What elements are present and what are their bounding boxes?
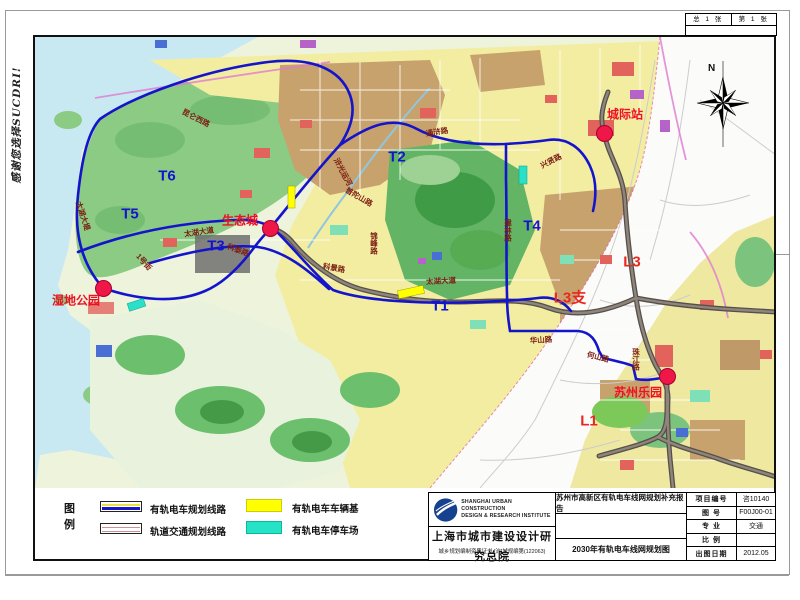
drawing-titles: 苏州市高新区有轨电车线网规划补充报告 2030年有轨电车线网规划图: [556, 493, 687, 560]
institute-logo: [433, 497, 458, 523]
field-label: 专 业: [687, 520, 737, 533]
field-value: [737, 534, 775, 547]
legend-title: 图例: [64, 500, 75, 532]
legend-label-depot: 有轨电车车辆基: [292, 501, 359, 515]
institute-name-cn: 上海市城市建设设计研究总院: [429, 526, 555, 547]
field-label: 项目编号: [687, 493, 737, 506]
field-label: 图 号: [687, 507, 737, 520]
hill-light: [400, 155, 460, 185]
rail-line-swatch: [100, 523, 142, 534]
field-row: 专 业 交通: [687, 520, 775, 534]
institute-block: SHANGHAI URBAN CONSTRUCTION DESIGN & RES…: [429, 493, 556, 560]
sheet-current: 第 1 张: [732, 14, 777, 25]
sheet-number-box: 总 1 张 第 1 张: [685, 13, 777, 36]
field-row: 比 例: [687, 534, 775, 548]
institute-name-en-line1: SHANGHAI URBAN CONSTRUCTION: [461, 499, 555, 513]
legend-label-parking: 有轨电车停车场: [292, 523, 359, 537]
report-title: 苏州市高新区有轨电车线网规划补充报告: [556, 493, 686, 514]
field-value: 2012.05: [737, 547, 775, 560]
legend-label-tram: 有轨电车规划线路: [150, 502, 226, 516]
hill-mid: [450, 230, 510, 270]
institute-name-en-line2: DESIGN & RESEARCH INSTITUTE: [461, 513, 555, 520]
field-value: F00J00-01: [737, 507, 775, 520]
drawing-title: 2030年有轨电车线网规划图: [556, 539, 686, 560]
depot-swatch: [246, 499, 282, 512]
field-label: 出图日期: [687, 547, 737, 560]
field-value: 交通: [737, 520, 775, 533]
field-row: 图 号 F00J00-01: [687, 507, 775, 521]
field-value: 咨10140: [737, 493, 775, 506]
tram-line-swatch: [100, 501, 142, 512]
field-row: 项目编号 咨10140: [687, 493, 775, 507]
legend-label-rail: 轨道交通规划线路: [150, 524, 226, 538]
project-fields: 项目编号 咨10140 图 号 F00J00-01 专 业 交通 比 例 出图日…: [687, 493, 775, 560]
compass-north-label: N: [708, 63, 715, 74]
field-row: 出图日期 2012.05: [687, 547, 775, 560]
sheet-total: 总 1 张: [686, 14, 732, 25]
parking-swatch: [246, 521, 282, 534]
title-block: SHANGHAI URBAN CONSTRUCTION DESIGN & RES…: [428, 492, 776, 561]
institute-credential: 城乡规划编制资质证书:[沪]城规编第(122063): [429, 547, 555, 560]
title-spacer: [556, 514, 686, 539]
field-label: 比 例: [687, 534, 737, 547]
